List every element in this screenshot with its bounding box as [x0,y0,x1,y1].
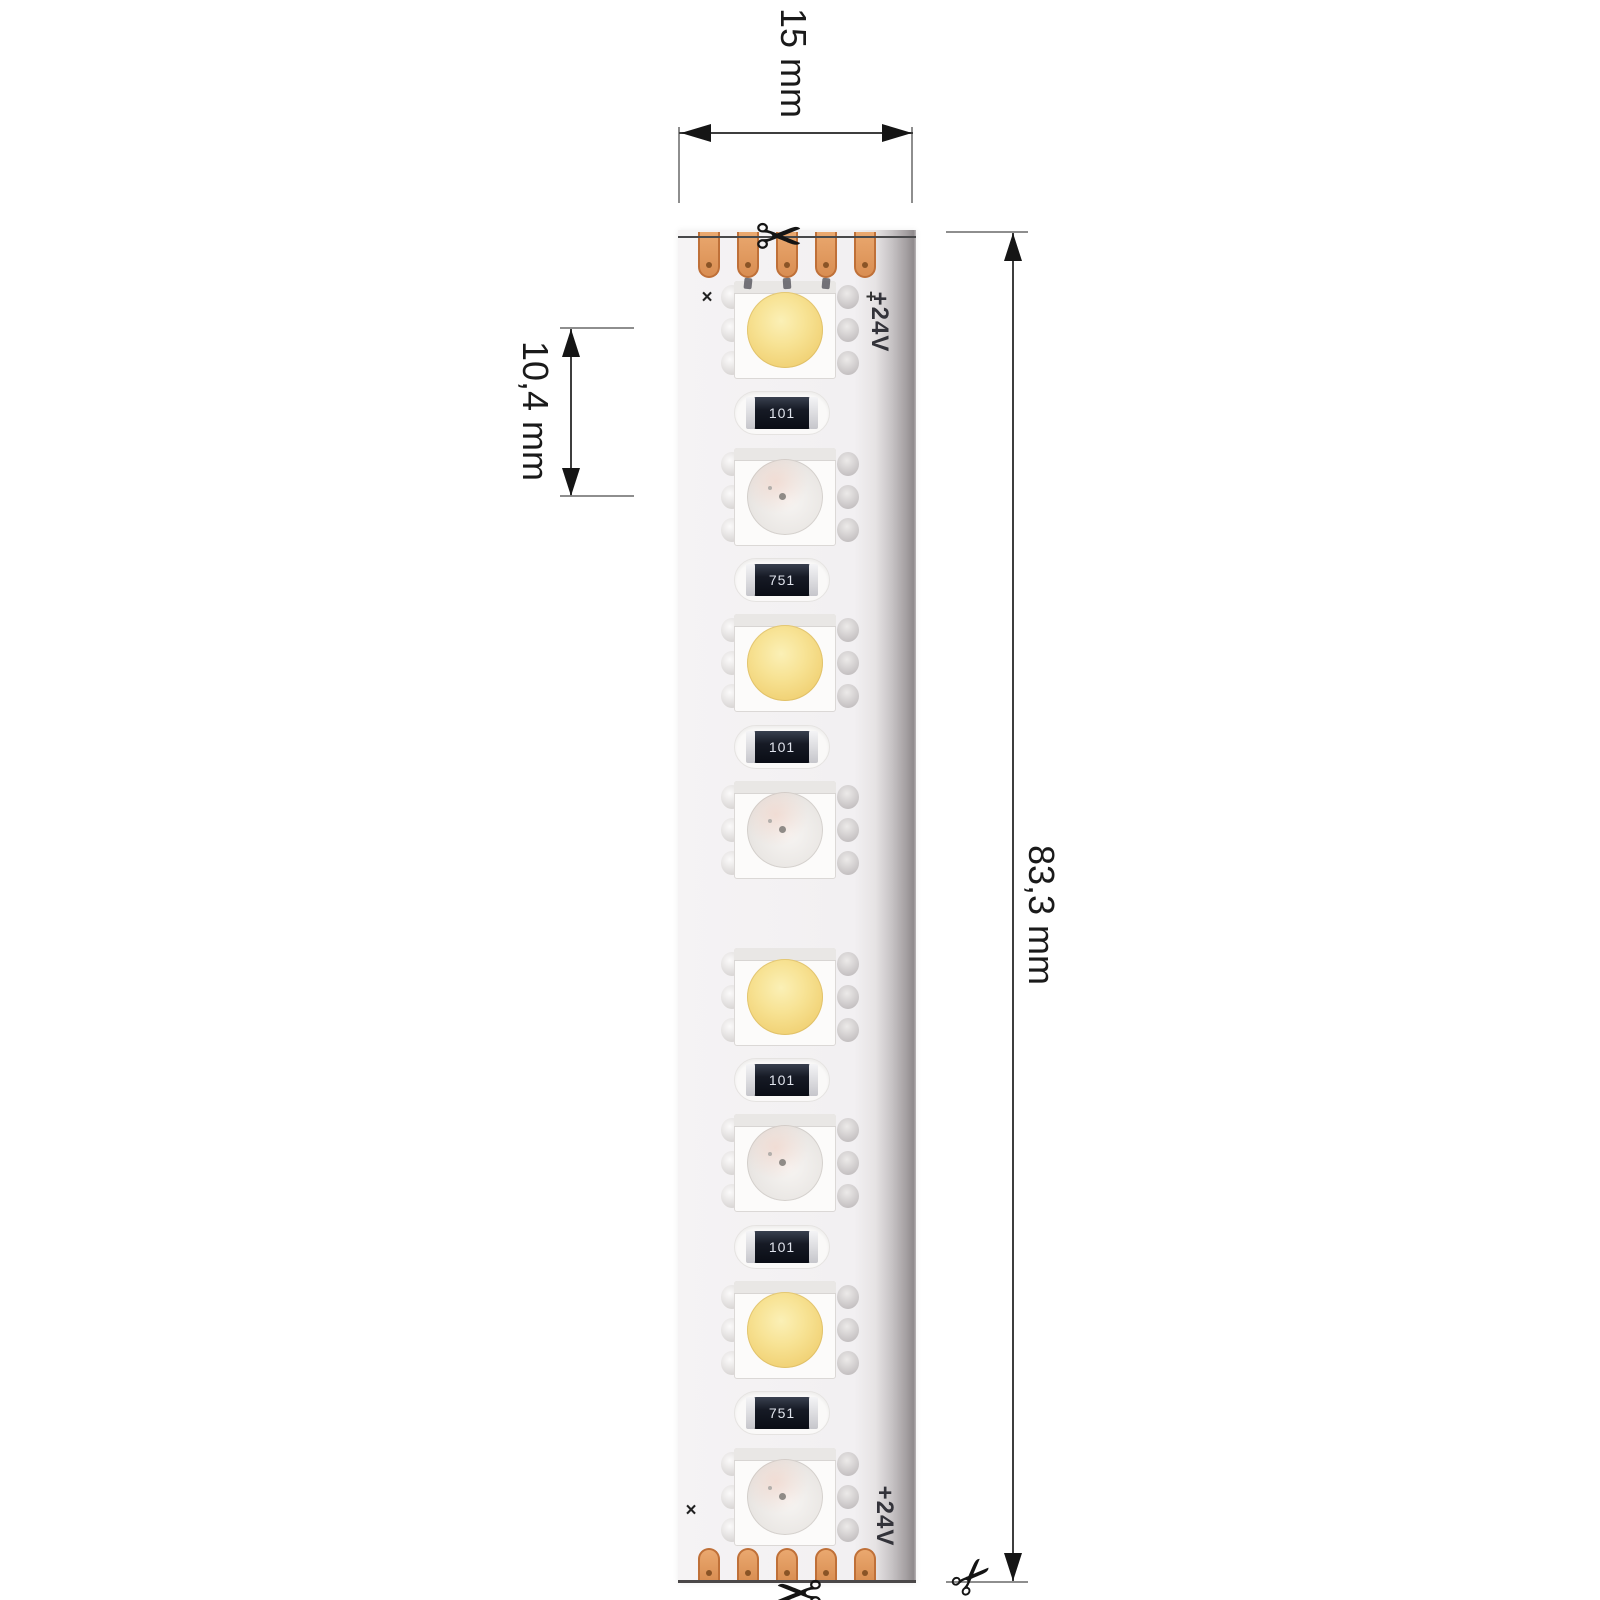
solder-pad-bottom [854,1548,876,1581]
warm-white-led-module [721,609,859,717]
resistor-code-label: 751 [754,1397,810,1429]
led-lead-bump [837,1351,859,1375]
silkscreen-mark [743,278,752,290]
led-lead-bump [837,952,859,976]
dim-width-arrow-left [681,124,711,142]
led-lead-bump [837,518,859,542]
led-lead-bump [837,618,859,642]
led-lead-bump [837,851,859,875]
solder-pad-top [698,232,720,278]
resistor-cap-right [809,397,818,429]
rgb-chip-dot-small [768,486,772,490]
led-lead-bump [837,351,859,375]
diagram-canvas: 15 mm 10,4 mm 83,3 mm × × + +24V +24V 10… [0,0,1600,1600]
resistor: 751 [734,1391,830,1435]
resistor: 101 [734,725,830,769]
resistor: 101 [734,391,830,435]
led-lead-bump [837,1285,859,1309]
resistor-cap-right [809,1397,818,1429]
led-lead-bump [837,318,859,342]
rgb-chip-dot [779,826,786,833]
led-lead-bump [837,1485,859,1509]
led-lead-bump [837,452,859,476]
rgb-led-module [721,776,859,884]
led-lead-bump [837,1018,859,1042]
solder-pad-top [854,232,876,278]
led-strip: × × + +24V +24V 101751101101101751 [678,230,916,1583]
pad-via-dot [823,262,829,268]
rgb-chip-dot [779,1159,786,1166]
led-lead-bump [837,1318,859,1342]
led-lead-bump [837,285,859,309]
solder-pad-bottom [737,1548,759,1581]
warm-white-emitter [747,1292,823,1368]
resistor-code-label: 101 [754,731,810,763]
led-lead-bump [837,684,859,708]
silkscreen-mark [822,278,831,290]
warm-white-led-module [721,276,859,384]
dim-width-extension-left [678,127,680,203]
warm-white-led-module [721,1276,859,1384]
dim-length-line [1012,233,1014,1581]
dim-width-arrow-right [882,124,912,142]
dim-length-arrow-up [1004,233,1022,261]
silkscreen-mark [783,278,792,290]
dim-pitch-label: 10,4 mm [514,341,556,481]
rgb-chip-dot [779,1493,786,1500]
dim-pitch-arrow-down [562,468,580,496]
pad-via-dot [706,1570,712,1576]
dim-length-label: 83,3 mm [1020,845,1062,985]
scissors-icon-dimension-end: ✂ [940,1545,1005,1600]
pad-via-dot [862,262,868,268]
rgb-led-module [721,1443,859,1551]
pad-via-dot [823,1570,829,1576]
led-lead-bump [837,1151,859,1175]
dim-pitch-arrow-up [562,329,580,357]
pad-via-dot [745,1570,751,1576]
resistor-cap-right [809,1231,818,1263]
resistor-code-label: 101 [754,397,810,429]
rgb-led-module [721,443,859,551]
led-lead-bump [837,1118,859,1142]
resistor-code-label: 101 [754,1231,810,1263]
warm-white-emitter [747,292,823,368]
warm-white-emitter [747,959,823,1035]
resistor: 101 [734,1058,830,1102]
resistor: 101 [734,1225,830,1269]
pad-via-dot [862,1570,868,1576]
warm-white-led-module [721,943,859,1051]
led-lead-bump [837,785,859,809]
solder-pad-bottom [698,1548,720,1581]
dim-length-arrow-down [1004,1553,1022,1581]
resistor-code-label: 101 [754,1064,810,1096]
scissors-icon-bottom-cut: ✂ [775,1565,824,1600]
solder-cross-mark-bottom: × [685,1500,696,1522]
rgb-chip-dot-small [768,1486,772,1490]
dim-width-label: 15 mm [772,8,814,118]
rgb-chip-dot [779,493,786,500]
resistor-code-label: 751 [754,564,810,596]
rgb-chip-dot-small [768,1152,772,1156]
scissors-icon-top-cut: ✂ [755,208,804,266]
resistor-cap-right [809,564,818,596]
warm-white-emitter [747,625,823,701]
solder-pad-top [815,232,837,278]
pad-via-dot [706,262,712,268]
led-lead-bump [837,1452,859,1476]
voltage-label-bottom: +24V [870,1486,898,1547]
led-lead-bump [837,818,859,842]
led-lead-bump [837,651,859,675]
led-lead-bump [837,1184,859,1208]
voltage-label-top: +24V [865,292,893,353]
resistor-cap-right [809,731,818,763]
solder-cross-mark-top: × [701,287,712,309]
led-lead-bump [837,485,859,509]
pad-via-dot [745,262,751,268]
resistor-cap-right [809,1064,818,1096]
dim-width-line [679,132,913,134]
rgb-chip-dot-small [768,819,772,823]
led-lead-bump [837,985,859,1009]
rgb-led-module [721,1109,859,1217]
led-lead-bump [837,1518,859,1542]
resistor: 751 [734,558,830,602]
